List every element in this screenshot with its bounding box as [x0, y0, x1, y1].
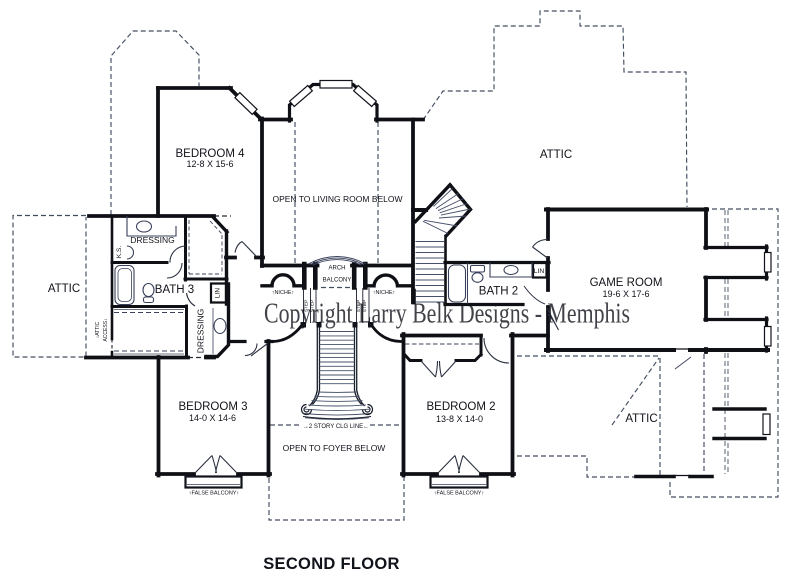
svg-text:ATTIC: ATTIC [48, 283, 80, 295]
svg-text:ACCESS↓: ACCESS↓ [103, 318, 109, 341]
svg-text:↑FALSE BALCONY↑: ↑FALSE BALCONY↑ [189, 491, 240, 497]
svg-text:LIN: LIN [215, 288, 222, 298]
svg-text:↓ATTIC: ↓ATTIC [95, 321, 101, 338]
svg-text:ATTIC: ATTIC [625, 413, 657, 425]
svg-text:→2 STORY CLG LINE←: →2 STORY CLG LINE← [303, 424, 369, 430]
svg-text:ARCH: ARCH [328, 266, 345, 272]
svg-text:SECOND FLOOR: SECOND FLOOR [263, 555, 400, 573]
svg-text:DRESSING: DRESSING [196, 309, 206, 353]
svg-text:BATH 3: BATH 3 [155, 284, 194, 296]
svg-text:OPEN TO FOYER BELOW: OPEN TO FOYER BELOW [283, 443, 386, 453]
svg-text:Copyright Larry Belk Designs -: Copyright Larry Belk Designs - Memphis [264, 299, 630, 330]
svg-text:↑NICHE↑: ↑NICHE↑ [272, 290, 295, 296]
svg-text:BALCONY: BALCONY [323, 278, 352, 284]
svg-text:GAME ROOM: GAME ROOM [590, 277, 663, 289]
svg-text:LIN: LIN [534, 268, 545, 275]
svg-text:DRESSING: DRESSING [130, 235, 174, 245]
svg-text:↑FALSE BALCONY↑: ↑FALSE BALCONY↑ [434, 491, 485, 497]
svg-text:14-0 X 14-6: 14-0 X 14-6 [189, 413, 236, 423]
svg-text:19-6 X 17-6: 19-6 X 17-6 [602, 289, 649, 299]
svg-text:BEDROOM 2: BEDROOM 2 [426, 401, 495, 413]
svg-text:ATTIC: ATTIC [540, 149, 572, 161]
svg-text:BEDROOM 3: BEDROOM 3 [178, 401, 247, 413]
svg-text:BATH 2: BATH 2 [479, 286, 518, 298]
svg-text:↑NICHE↑: ↑NICHE↑ [373, 290, 396, 296]
svg-text:13-8 X 14-0: 13-8 X 14-0 [436, 414, 483, 424]
svg-text:K.S.: K.S. [116, 246, 123, 258]
svg-text:12-8 X 15-6: 12-8 X 15-6 [186, 159, 233, 169]
svg-text:OPEN TO LIVING ROOM BELOW: OPEN TO LIVING ROOM BELOW [272, 194, 402, 204]
